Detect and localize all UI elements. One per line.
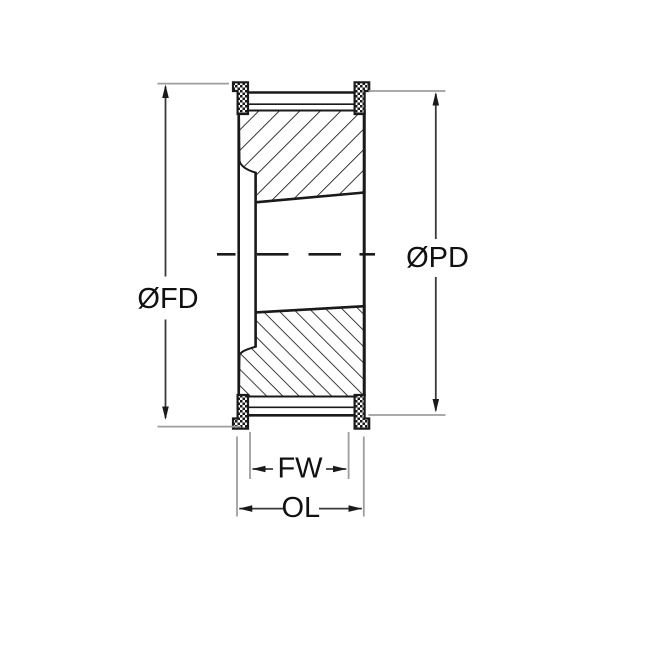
pulley-cross-section-drawing: ØFD ØPD FW OL	[0, 0, 670, 670]
flange-bottom-left	[233, 395, 248, 429]
pd-arrow-down	[433, 399, 440, 413]
upper-body-hatch-section	[239, 111, 365, 203]
ol-arrow-right	[349, 505, 363, 512]
fd-arrow-up	[162, 85, 169, 99]
lower-body-hatch-section	[239, 306, 365, 396]
flange-top-left	[233, 82, 248, 114]
rim-bottom	[246, 407, 357, 415]
dimension-face-width: FW	[252, 453, 347, 485]
label-overall-length: OL	[281, 492, 320, 524]
flange-bottom-right	[355, 395, 370, 429]
dimension-pitch-diameter: ØPD	[406, 92, 469, 413]
label-flange-diameter: ØFD	[137, 283, 198, 315]
flange-top-right	[355, 82, 370, 114]
fw-arrow-right	[333, 466, 347, 473]
fd-arrow-down	[162, 407, 169, 421]
pd-arrow-up	[433, 92, 440, 106]
label-face-width: FW	[277, 453, 323, 485]
ol-arrow-left	[239, 505, 253, 512]
fw-arrow-left	[252, 466, 266, 473]
rim-top	[246, 93, 357, 105]
drawing-canvas: ØFD ØPD FW OL	[0, 0, 670, 670]
pulley-body	[217, 82, 375, 428]
dimension-flange-diameter: ØFD	[137, 85, 198, 421]
label-pitch-diameter: ØPD	[406, 242, 469, 274]
dimension-overall-length: OL	[239, 492, 362, 524]
